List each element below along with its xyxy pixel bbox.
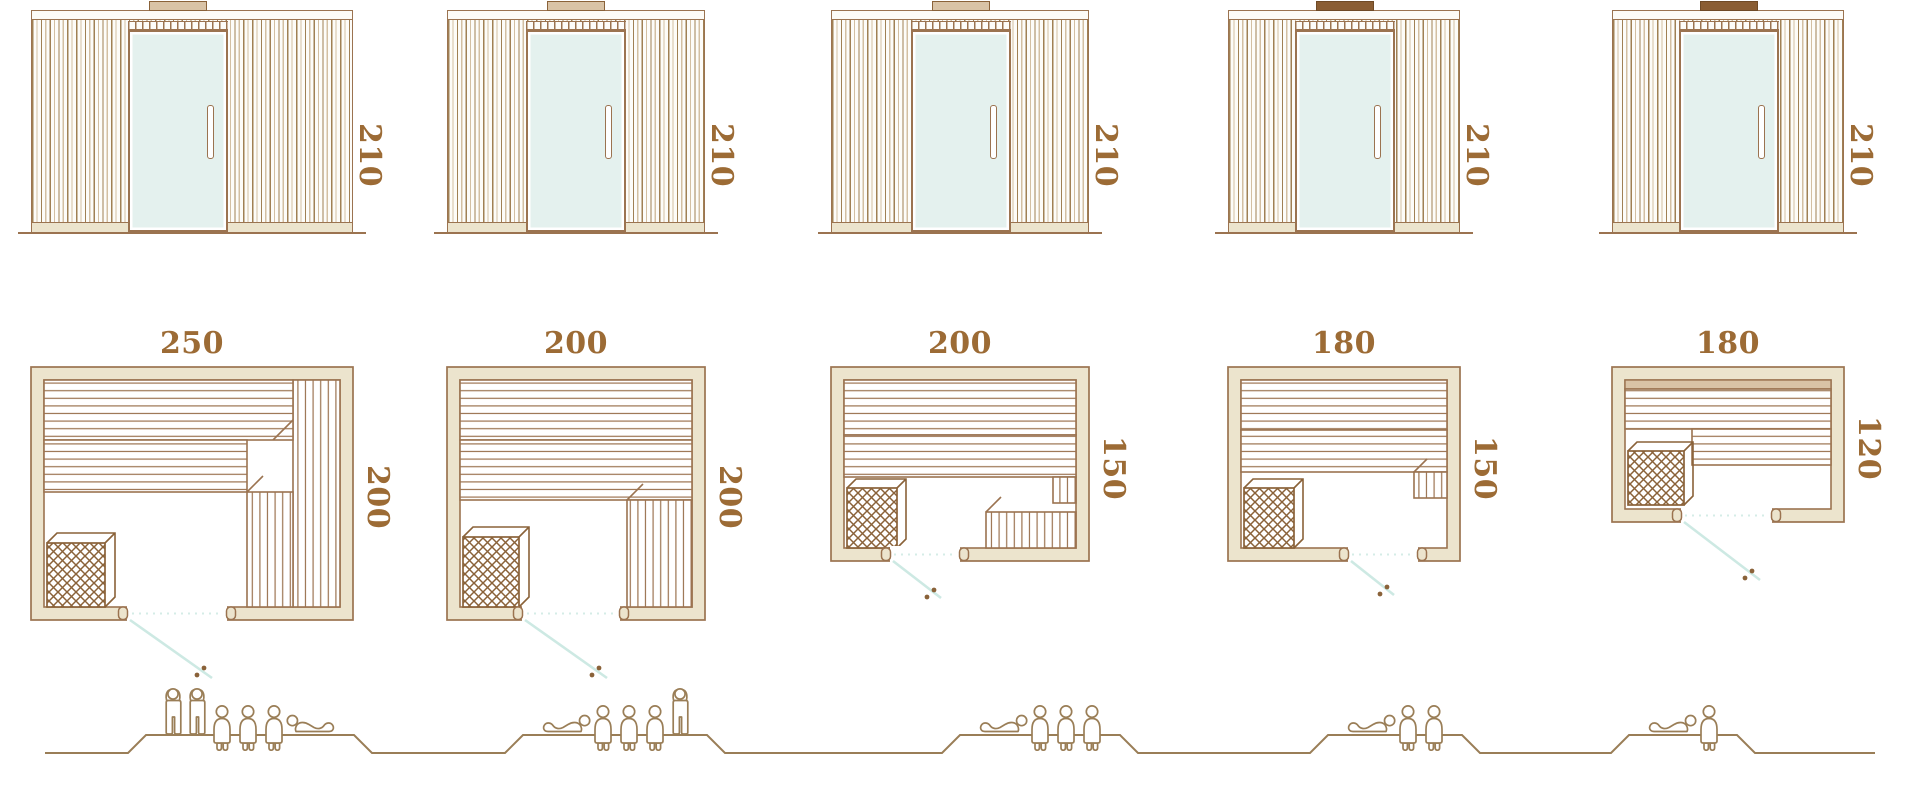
door-handle-dot <box>1385 585 1390 590</box>
sauna-column-250x200: 210 250 200 <box>0 0 384 789</box>
bench-top-lower <box>844 435 1076 477</box>
door-vent-grille-icon <box>1295 21 1395 30</box>
plan-width-label: 250 <box>0 326 384 361</box>
capacity-figures <box>1152 670 1536 789</box>
heater-icon <box>47 533 115 607</box>
bench-top-upper <box>1241 380 1447 430</box>
person-standing-icon <box>190 689 205 734</box>
capacity-figures <box>768 670 1152 789</box>
person-sitting-icon <box>1426 706 1442 750</box>
sauna-column-180x120: 210 180 120 <box>1536 0 1920 789</box>
plan-width-label: 200 <box>384 326 768 361</box>
person-sitting-icon <box>1400 706 1416 750</box>
heater-icon <box>1628 442 1693 505</box>
glass-door <box>1295 30 1395 232</box>
capacity-figures <box>384 670 768 789</box>
bench-top-upper <box>460 380 692 440</box>
bench-top-lower <box>44 440 247 492</box>
person-lying-icon <box>544 716 590 732</box>
door-handle-dot <box>1378 592 1383 597</box>
elevation-top-band <box>32 11 352 20</box>
door-vent-grille-icon <box>526 21 626 30</box>
door-handle-icon <box>990 105 997 159</box>
roof-vent-cap-icon <box>149 1 207 11</box>
floor-line <box>434 232 718 234</box>
person-sitting-icon <box>214 706 230 750</box>
sauna-front-elevation <box>1228 10 1460 233</box>
glass-door <box>128 30 228 232</box>
sauna-front-elevation <box>831 10 1089 233</box>
bench-top-upper <box>844 380 1076 435</box>
door-opening <box>1673 507 1781 580</box>
door-opening <box>119 605 236 678</box>
bench-top-lower <box>1692 429 1831 465</box>
capacity-figures <box>0 670 384 789</box>
person-sitting-icon <box>595 706 611 750</box>
person-lying-icon <box>1650 716 1696 732</box>
floor-plan-200x150 <box>786 363 1134 669</box>
person-lying-icon <box>1349 716 1395 732</box>
door-vent-grille-icon <box>911 21 1011 30</box>
roof-vent-cap-icon <box>932 1 990 11</box>
plan-width-label: 180 <box>1152 326 1536 361</box>
bench-right-lower <box>627 484 692 607</box>
door-opening <box>1340 546 1427 596</box>
plan-width-label: 180 <box>1536 326 1920 361</box>
door-vent-grille-icon <box>128 21 228 30</box>
elevation-height-label: 210 <box>704 123 739 187</box>
elevation-top-band <box>1229 11 1459 20</box>
person-sitting-icon <box>1058 706 1074 750</box>
floor-plan-180x120 <box>1567 363 1889 630</box>
ground-line <box>384 735 768 753</box>
floor-line <box>1599 232 1857 234</box>
sauna-front-elevation <box>31 10 353 233</box>
glass-door <box>526 30 626 232</box>
person-sitting-icon <box>1032 706 1048 750</box>
elevation-top-band <box>448 11 704 20</box>
door-swing-line <box>893 561 941 598</box>
ground-line <box>1152 735 1536 753</box>
elevation-height-label: 210 <box>1459 123 1494 187</box>
plan-width-label: 200 <box>768 326 1152 361</box>
floor-line <box>18 232 366 234</box>
door-swing-line <box>1684 522 1760 580</box>
sauna-front-elevation <box>1612 10 1844 233</box>
door-handle-dot <box>1750 569 1755 574</box>
bench-top-upper <box>44 380 293 440</box>
sauna-door <box>128 21 228 232</box>
sauna-door <box>1295 21 1395 232</box>
floor-plan-180x150 <box>1183 363 1505 669</box>
door-handle-icon <box>605 105 612 159</box>
door-handle-dot <box>1743 576 1748 581</box>
bench-top-lower <box>460 440 692 500</box>
glass-door <box>1679 30 1779 232</box>
sauna-column-200x150: 210 200 150 <box>768 0 1152 789</box>
person-sitting-icon <box>1084 706 1100 750</box>
roof-vent-cap-icon <box>1700 1 1758 11</box>
sauna-door <box>526 21 626 232</box>
person-sitting-icon <box>240 706 256 750</box>
door-opening <box>882 546 969 599</box>
heater-icon <box>847 479 906 548</box>
roof-vent-cap-icon <box>1316 1 1374 11</box>
door-swing-line <box>1351 561 1394 595</box>
heater-icon <box>463 527 529 607</box>
door-opening <box>514 605 629 678</box>
door-handle-icon <box>207 105 214 159</box>
person-sitting-icon <box>621 706 637 750</box>
sauna-column-200x200: 210 200 200 <box>384 0 768 789</box>
person-lying-icon <box>981 716 1027 732</box>
bench-right-return <box>1053 477 1076 503</box>
person-sitting-icon <box>1701 706 1717 750</box>
person-standing-icon <box>673 689 688 734</box>
elevation-height-label: 210 <box>352 123 387 187</box>
heater-icon <box>1244 479 1303 548</box>
glass-door <box>911 30 1011 232</box>
elevation-height-label: 210 <box>1843 123 1878 187</box>
sauna-column-180x150: 210 180 150 <box>1152 0 1536 789</box>
bench-top-back-rail <box>1625 380 1831 389</box>
door-vent-grille-icon <box>1679 21 1779 30</box>
person-lying-icon <box>287 716 333 732</box>
sauna-dimension-diagram: 210 250 200 <box>0 0 1920 789</box>
door-handle-icon <box>1758 105 1765 159</box>
door-handle-dot <box>925 595 930 600</box>
bench-right-lower <box>247 476 293 607</box>
roof-vent-cap-icon <box>547 1 605 11</box>
person-sitting-icon <box>647 706 663 750</box>
sauna-front-elevation <box>447 10 705 233</box>
bench-top-upper <box>1625 389 1831 429</box>
sauna-door <box>911 21 1011 232</box>
elevation-top-band <box>1613 11 1843 20</box>
bench-right-upper <box>293 380 340 607</box>
elevation-top-band <box>832 11 1088 20</box>
person-standing-icon <box>166 689 181 734</box>
floor-line <box>1215 232 1473 234</box>
elevation-height-label: 210 <box>1088 123 1123 187</box>
person-sitting-icon <box>266 706 282 750</box>
door-handle-dot <box>932 588 937 593</box>
bench-top-lower <box>1241 430 1447 472</box>
capacity-figures <box>1536 670 1920 789</box>
door-handle-icon <box>1374 105 1381 159</box>
floor-line <box>818 232 1102 234</box>
sauna-door <box>1679 21 1779 232</box>
